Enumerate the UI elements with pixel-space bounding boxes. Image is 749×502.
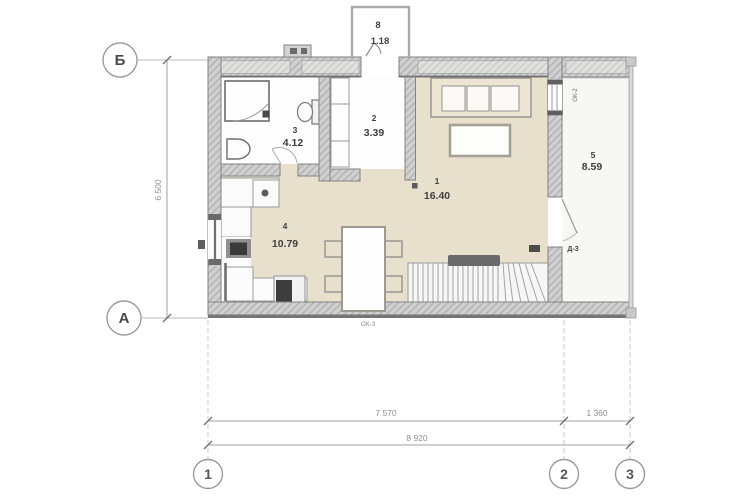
svg-text:5: 5 xyxy=(591,150,596,160)
svg-text:8: 8 xyxy=(375,20,380,31)
svg-text:1: 1 xyxy=(204,466,212,482)
svg-text:4: 4 xyxy=(283,221,288,231)
svg-text:Д-3: Д-3 xyxy=(567,246,578,253)
svg-text:16.40: 16.40 xyxy=(424,190,450,202)
svg-text:1: 1 xyxy=(435,176,440,186)
svg-text:ОК-2: ОК-2 xyxy=(573,88,579,102)
svg-text:1 360: 1 360 xyxy=(586,408,608,418)
svg-text:4.12: 4.12 xyxy=(283,137,304,149)
svg-text:Б: Б xyxy=(115,52,126,69)
svg-text:2: 2 xyxy=(372,113,377,123)
svg-text:8 920: 8 920 xyxy=(406,433,428,443)
svg-text:3: 3 xyxy=(293,125,298,135)
svg-text:3.39: 3.39 xyxy=(364,127,385,139)
svg-text:6 500: 6 500 xyxy=(153,179,163,201)
svg-text:10.79: 10.79 xyxy=(272,238,298,250)
svg-text:8.59: 8.59 xyxy=(582,161,603,173)
svg-text:ОК-3: ОК-3 xyxy=(361,321,376,328)
svg-text:7 570: 7 570 xyxy=(375,408,397,418)
svg-text:1.18: 1.18 xyxy=(371,36,390,47)
svg-text:3: 3 xyxy=(626,466,634,482)
svg-text:А: А xyxy=(119,310,130,327)
svg-text:2: 2 xyxy=(560,466,568,482)
